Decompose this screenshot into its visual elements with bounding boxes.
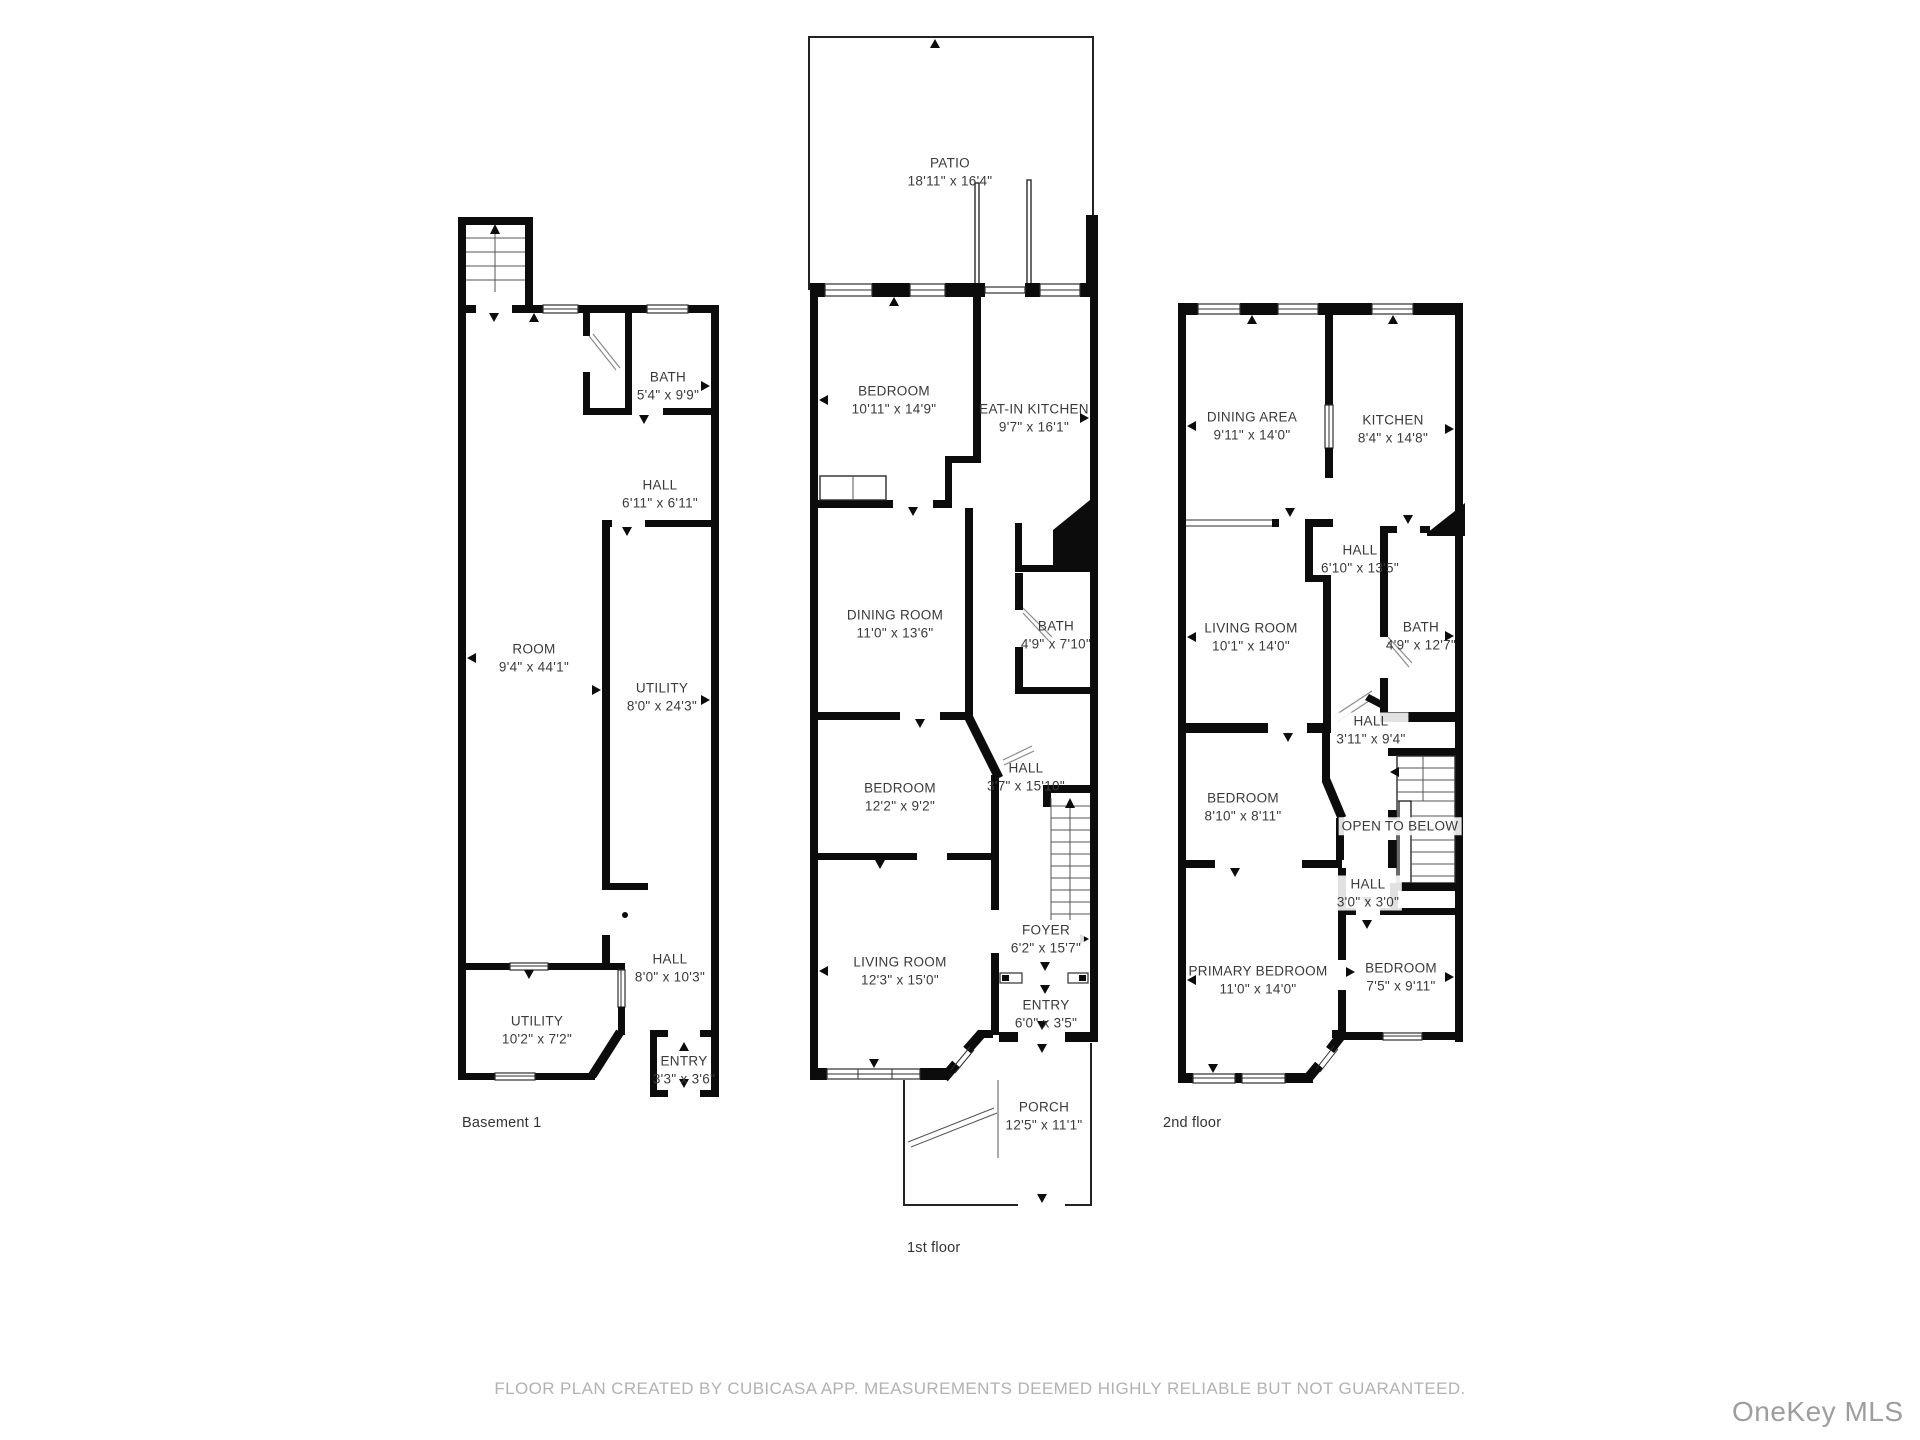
room-label-basement-utility-small: UTILITY 10'2" x 7'2" (502, 1013, 572, 1048)
watermark-onekey-mls: OneKey MLS (1732, 1396, 1904, 1428)
room-label-2f-hall-upper: HALL 6'10" x 13'5" (1321, 542, 1399, 577)
room-label-basement-entry: ENTRY 3'3" x 3'6" (653, 1053, 715, 1088)
room-label-basement-room: ROOM 9'4" x 44'1" (499, 641, 569, 676)
disclaimer-text: FLOOR PLAN CREATED BY CUBICASA APP. MEAS… (494, 1379, 1465, 1399)
room-label-1f-foyer: FOYER 6'2" x 15'7" (1008, 922, 1084, 957)
room-label-basement-bath: BATH 5'4" x 9'9" (637, 369, 699, 404)
room-label-1f-eat-in-kitchen: EAT-IN KITCHEN 9'7" x 16'1" (979, 401, 1089, 436)
room-label-1f-bedroom-mid: BEDROOM 12'2" x 9'2" (864, 780, 936, 815)
room-label-2f-kitchen: KITCHEN 8'4" x 14'8" (1358, 412, 1428, 447)
room-label-2f-hall-small: HALL 3'0" x 3'0" (1334, 876, 1402, 911)
floor-label-1st: 1st floor (907, 1240, 960, 1256)
room-label-1f-patio: PATIO 18'11" x 16'4" (908, 155, 993, 190)
room-label-1f-dining-room: DINING ROOM 11'0" x 13'6" (847, 607, 943, 642)
room-label-2f-hall-mid: HALL 3'11" x 9'4" (1333, 713, 1408, 748)
room-label-1f-bath: BATH 4'9" x 7'10" (1021, 618, 1091, 653)
room-label-2f-primary-bedroom: PRIMARY BEDROOM 11'0" x 14'0" (1188, 963, 1327, 998)
room-label-2f-bath: BATH 4'9" x 12'7" (1386, 619, 1456, 654)
room-label-1f-living-room: LIVING ROOM 12'3" x 15'0" (853, 954, 946, 989)
room-label-2f-bedroom-mid: BEDROOM 8'10" x 8'11" (1205, 790, 1282, 825)
room-label-basement-hall-lower: HALL 8'0" x 10'3" (635, 951, 705, 986)
room-label-1f-porch: PORCH 12'5" x 11'1" (1006, 1099, 1083, 1134)
room-label-2f-bedroom-rear: BEDROOM 7'5" x 9'11" (1365, 960, 1437, 995)
room-label-2f-open-to-below: OPEN TO BELOW (1339, 817, 1462, 835)
room-label-1f-bedroom-front: BEDROOM 10'11" x 14'9" (852, 383, 937, 418)
floorplan-drawing (0, 0, 1920, 1440)
floor-label-2nd: 2nd floor (1163, 1115, 1221, 1131)
floor-label-basement: Basement 1 (462, 1115, 541, 1131)
room-label-1f-hall: HALL 3'7" x 15'10" (987, 760, 1065, 795)
floor-plan-page: BATH 5'4" x 9'9" HALL 6'11" x 6'11" ROOM… (0, 0, 1920, 1440)
room-label-basement-utility-long: UTILITY 8'0" x 24'3" (627, 680, 697, 715)
room-label-1f-entry: ENTRY 6'0" x 3'5" (1015, 997, 1077, 1032)
room-label-2f-living-room: LIVING ROOM 10'1" x 14'0" (1204, 620, 1297, 655)
room-label-2f-dining-area: DINING AREA 9'11" x 14'0" (1207, 409, 1297, 444)
room-label-basement-hall-upper: HALL 6'11" x 6'11" (622, 477, 698, 512)
